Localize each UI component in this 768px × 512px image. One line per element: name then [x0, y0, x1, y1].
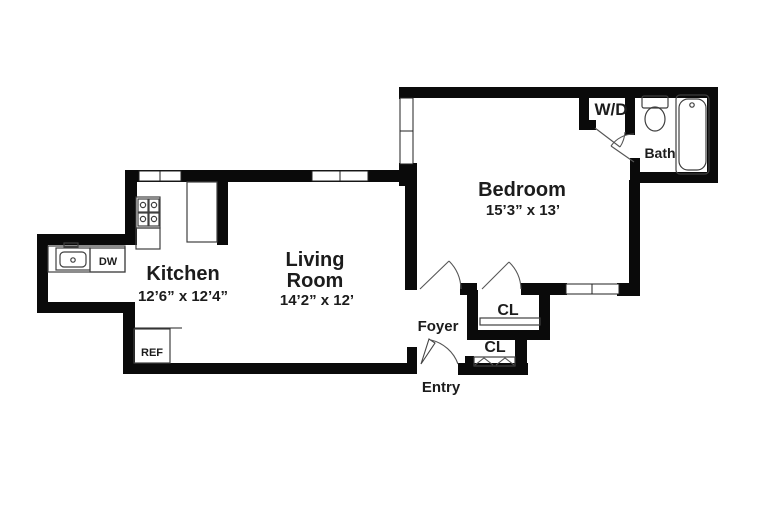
- closet-lower-label: CL: [484, 339, 506, 356]
- closet-shelf: [480, 318, 540, 325]
- bathtub: [676, 95, 709, 174]
- wall-bedroom-topleft-corner: [399, 87, 413, 99]
- fixtures: DW REF: [48, 95, 709, 366]
- wall-entry-stub: [407, 347, 417, 374]
- wall-closet-upper-left: [467, 290, 478, 338]
- dishwasher: DW: [90, 248, 125, 272]
- wall-kitchen-stub: [217, 182, 228, 245]
- wall-bottom-main: [123, 363, 408, 374]
- refrigerator: REF: [134, 328, 182, 363]
- wall-closet-mid: [467, 330, 550, 340]
- wall-bathdoor-stub: [630, 158, 640, 180]
- window-living: [312, 171, 368, 181]
- stove: [136, 197, 160, 249]
- wall-bedroom-bottom-corner: [617, 283, 640, 296]
- closet-upper-label: CL: [497, 302, 519, 319]
- entry-label: Entry: [422, 379, 461, 396]
- living-room-dims: 14’2” x 12’: [280, 292, 354, 309]
- bedroom-label: Bedroom: [478, 179, 566, 201]
- kitchen-label: Kitchen: [146, 263, 219, 285]
- wall-top-bedroom: [399, 87, 718, 98]
- dishwasher-label: DW: [99, 256, 118, 268]
- door-bath: [611, 134, 634, 162]
- wall-closet-upper-right: [539, 290, 550, 338]
- bedroom-dims: 15’3” x 13’: [486, 202, 560, 219]
- living-room-label-line1: Living: [286, 249, 345, 271]
- wall-alcove-left: [37, 234, 48, 313]
- wall-bifold-stub: [465, 356, 474, 366]
- foyer-label: Foyer: [418, 318, 459, 335]
- floor-plan: DW REF Kitchen 12’6” x 12’4”: [0, 0, 768, 512]
- door-entry: [421, 339, 458, 364]
- wall-bedroom-right: [629, 180, 640, 290]
- window-bedroom-left: [400, 98, 413, 164]
- door-bedroom: [420, 261, 461, 289]
- wall-divider: [405, 163, 417, 290]
- window-bedroom-bottom: [566, 284, 619, 294]
- bath-label: Bath: [644, 145, 675, 161]
- toilet: [642, 96, 668, 131]
- window-kitchen: [139, 171, 181, 181]
- refrigerator-label: REF: [141, 347, 163, 359]
- walls: [37, 87, 718, 375]
- door-closet-upper: [482, 262, 521, 289]
- laundry-closet-label: W/D: [594, 100, 627, 119]
- wall-alcove-bottom: [37, 302, 135, 313]
- wall-alcove-top: [37, 234, 137, 245]
- living-room-label-line2: Room: [287, 270, 344, 292]
- wall-kitchen-left-upper: [125, 170, 137, 240]
- kitchen-dims: 12’6” x 12’4”: [138, 288, 228, 305]
- wall-wd-stub: [579, 120, 596, 130]
- kitchen-counter: [187, 182, 217, 242]
